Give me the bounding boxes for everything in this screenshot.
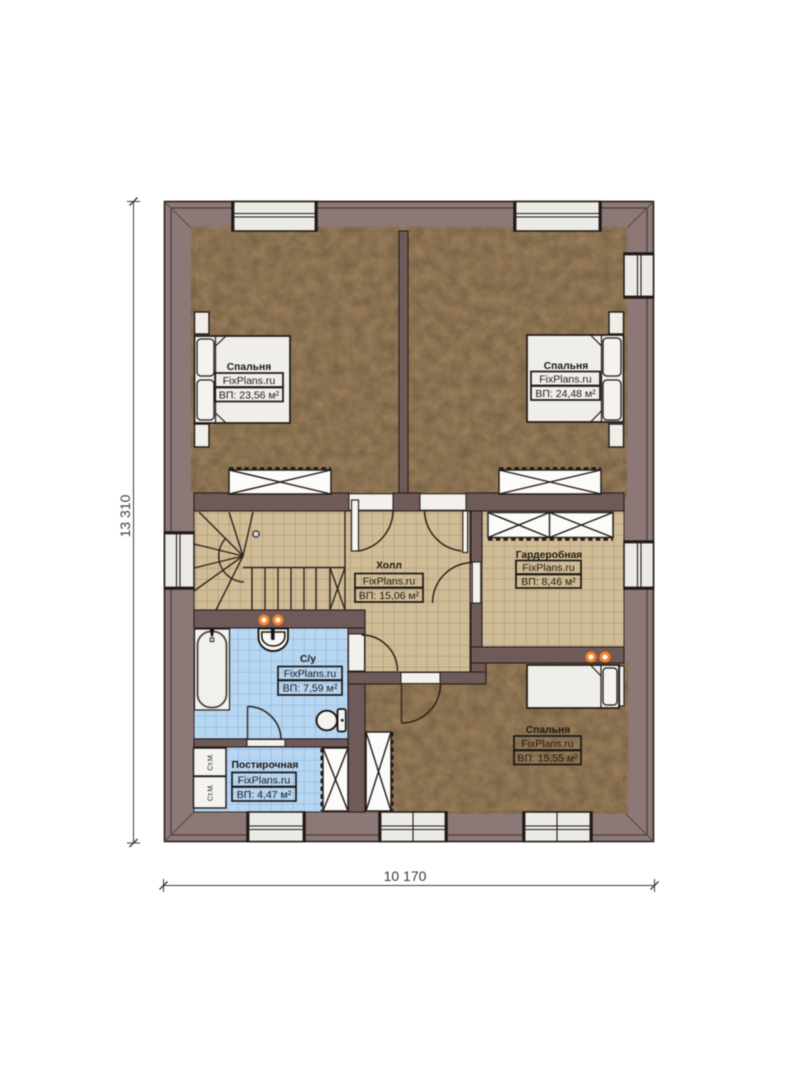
svg-text:ВП: 15,55 м²: ВП: 15,55 м² — [517, 753, 578, 765]
svg-text:Ст.М.: Ст.М. — [208, 784, 215, 801]
svg-text:Гардеробная: Гардеробная — [516, 549, 583, 561]
svg-text:ВП: 8,46 м²: ВП: 8,46 м² — [521, 576, 576, 588]
svg-text:ВП: 23,56 м²: ВП: 23,56 м² — [219, 390, 280, 402]
svg-text:FixPlans.ru: FixPlans.ru — [223, 375, 276, 387]
svg-text:Холл: Холл — [376, 561, 402, 572]
svg-text:Ст.М.: Ст.М. — [208, 753, 215, 770]
svg-text:FixPlans.ru: FixPlans.ru — [521, 738, 574, 750]
svg-text:ВП: 15,06 м²: ВП: 15,06 м² — [359, 590, 420, 602]
svg-text:Постирочная: Постирочная — [232, 760, 299, 771]
svg-text:FixPlans.ru: FixPlans.ru — [539, 374, 592, 386]
svg-text:FixPlans.ru: FixPlans.ru — [363, 576, 416, 588]
svg-text:ВП: 24,48 м²: ВП: 24,48 м² — [535, 388, 596, 400]
svg-text:13 310: 13 310 — [117, 494, 133, 537]
svg-text:10 170: 10 170 — [384, 868, 427, 884]
svg-text:Спальня: Спальня — [544, 361, 588, 372]
svg-text:Спальня: Спальня — [227, 362, 271, 373]
svg-text:Спальня: Спальня — [526, 725, 570, 736]
svg-text:FixPlans.ru: FixPlans.ru — [238, 775, 291, 787]
svg-text:С/у: С/у — [300, 654, 316, 665]
svg-text:ВП: 4,47 м²: ВП: 4,47 м² — [237, 789, 292, 801]
svg-text:FixPlans.ru: FixPlans.ru — [284, 668, 337, 680]
svg-text:FixPlans.ru: FixPlans.ru — [522, 562, 575, 574]
svg-text:ВП: 7,59 м²: ВП: 7,59 м² — [283, 683, 338, 695]
